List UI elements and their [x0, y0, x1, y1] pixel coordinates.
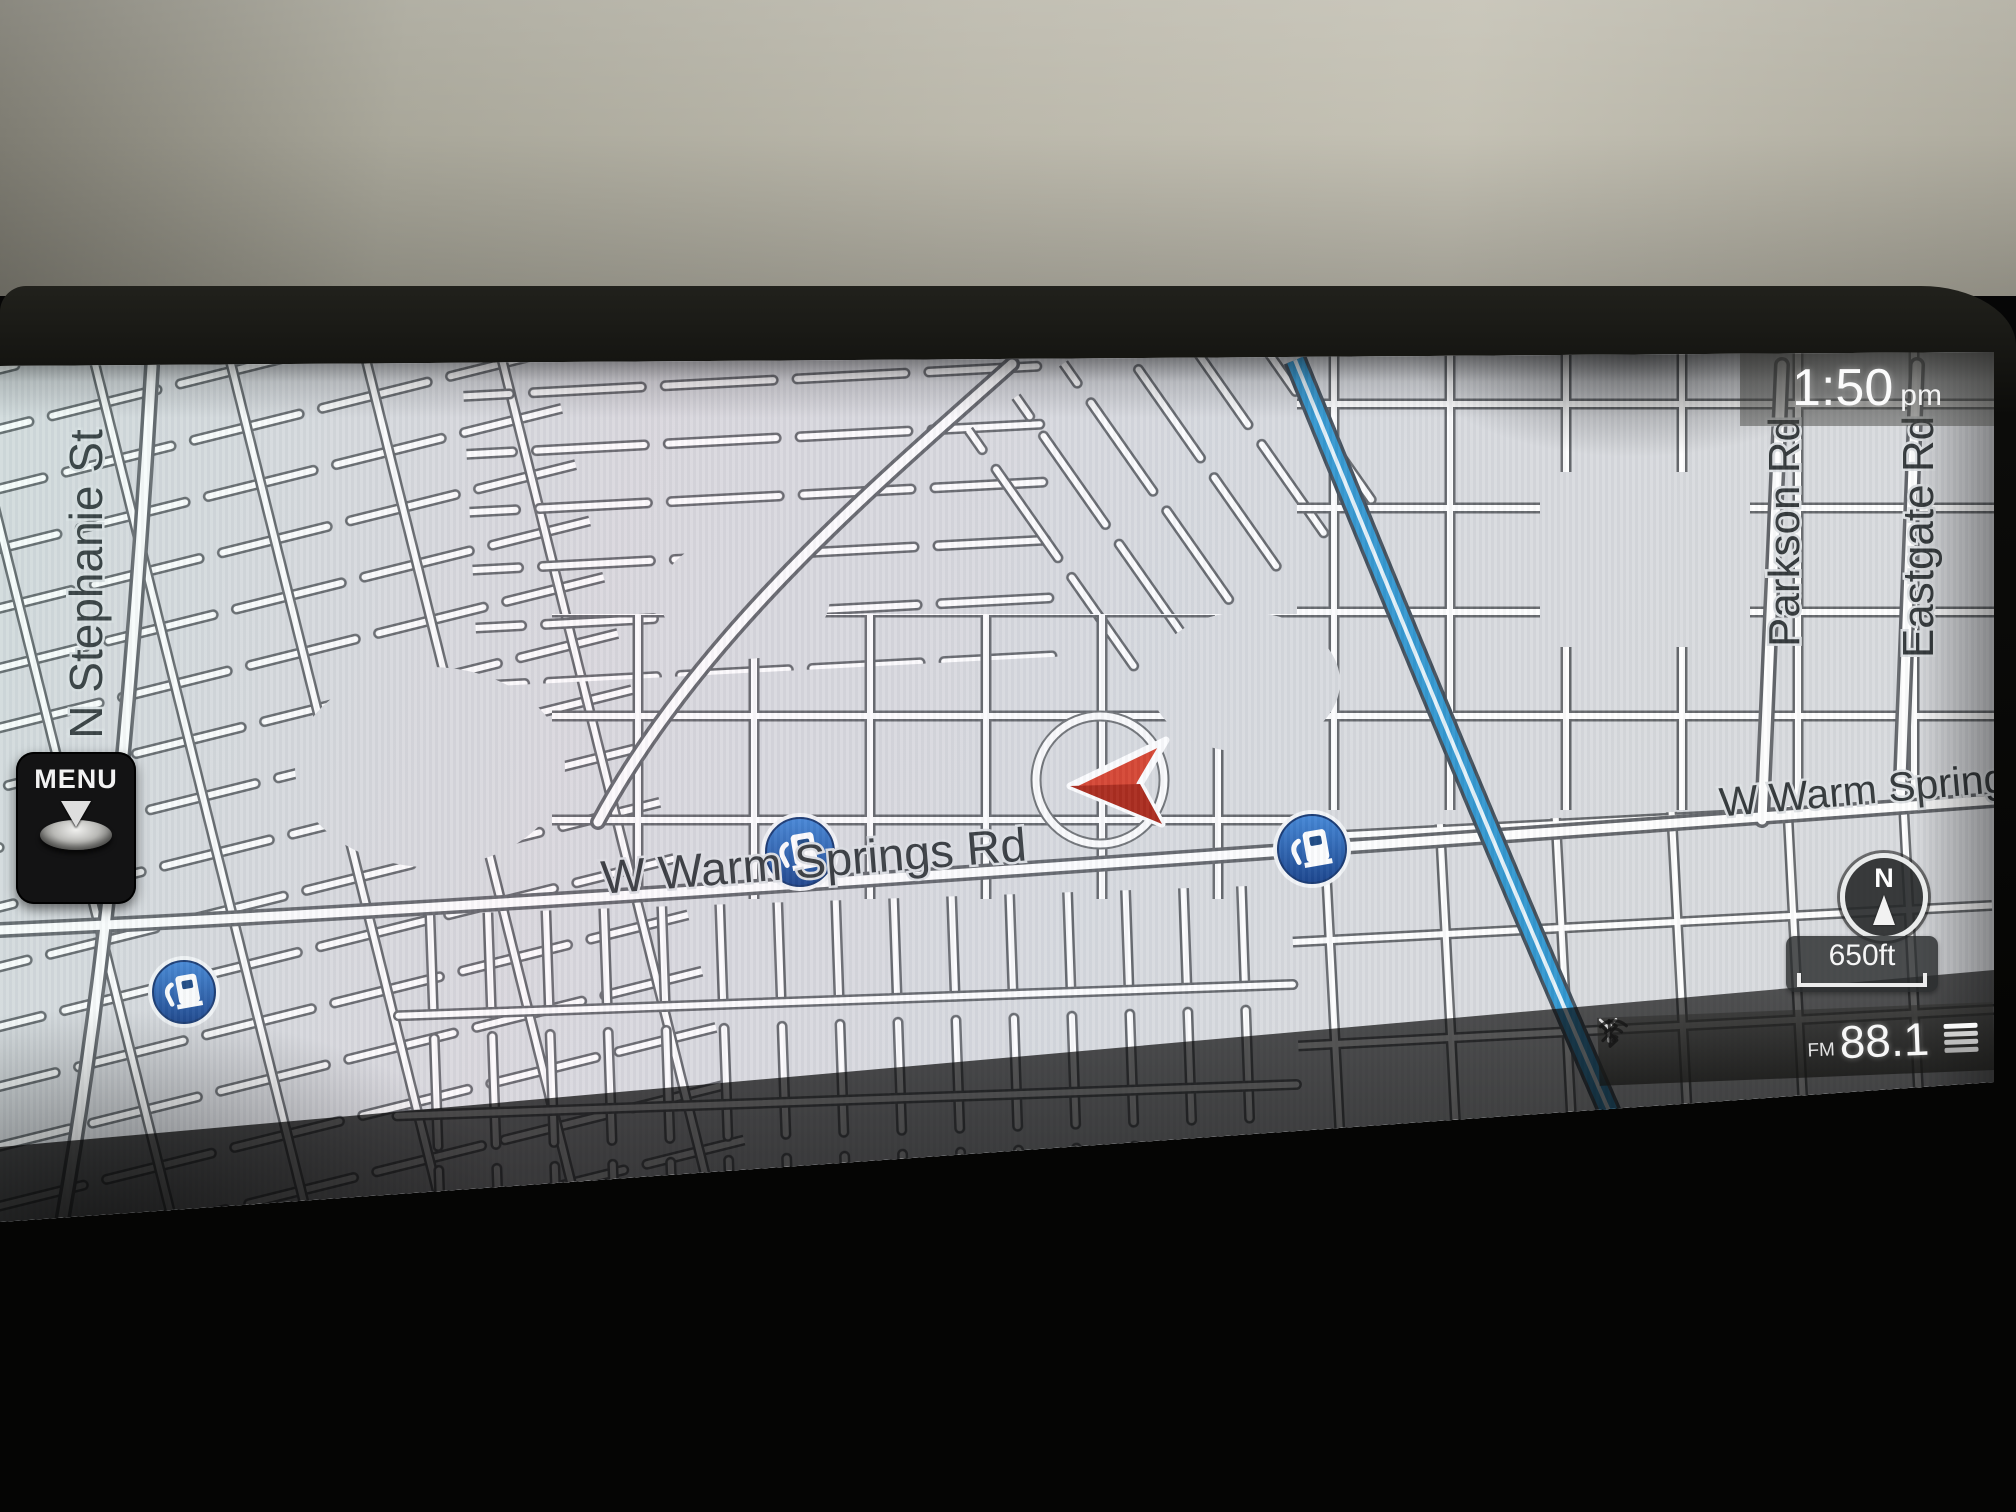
clock-time: 1:50 — [1792, 362, 1893, 414]
radio-frequency: 88.1 — [1839, 1016, 1930, 1066]
menu-label: MENU — [34, 764, 118, 795]
scale-indicator: 650ft — [1786, 936, 1938, 992]
signal-bars-icon — [1943, 1022, 1978, 1052]
clock-meridiem: pm — [1900, 381, 1942, 411]
compass-north-label: N — [1874, 865, 1894, 892]
radio-source: FM 88.1 — [1806, 1016, 1930, 1067]
compass-needle-icon — [1873, 895, 1895, 925]
scale-label: 650ft — [1829, 941, 1896, 971]
street-label-parkson: Parkson Rd — [1760, 417, 1809, 647]
gas-station-icon — [148, 956, 220, 1028]
fm-band-label: FM — [1807, 1040, 1835, 1060]
menu-arrow-icon — [61, 801, 91, 827]
gas-station-icon — [1273, 810, 1351, 888]
compass-button[interactable]: N — [1840, 853, 1928, 941]
wifi-icon — [1597, 1017, 1630, 1044]
menu-button[interactable]: MENU — [16, 752, 136, 904]
dashboard-photo: N Stephanie St W Warm Springs Rd W Warm … — [0, 0, 2016, 1512]
street-label-stephanie: N Stephanie St — [60, 429, 112, 739]
infotainment-screen[interactable]: N Stephanie St W Warm Springs Rd W Warm … — [0, 352, 1994, 1222]
navigation-map[interactable]: N Stephanie St W Warm Springs Rd W Warm … — [0, 352, 1994, 1222]
time-banner: 1:50 pm — [1740, 352, 1994, 426]
street-label-eastgate: Eastgate Rd — [1894, 416, 1943, 658]
scale-bracket-icon — [1797, 973, 1927, 987]
road-network — [0, 352, 1994, 1222]
wall-background — [0, 0, 2016, 296]
